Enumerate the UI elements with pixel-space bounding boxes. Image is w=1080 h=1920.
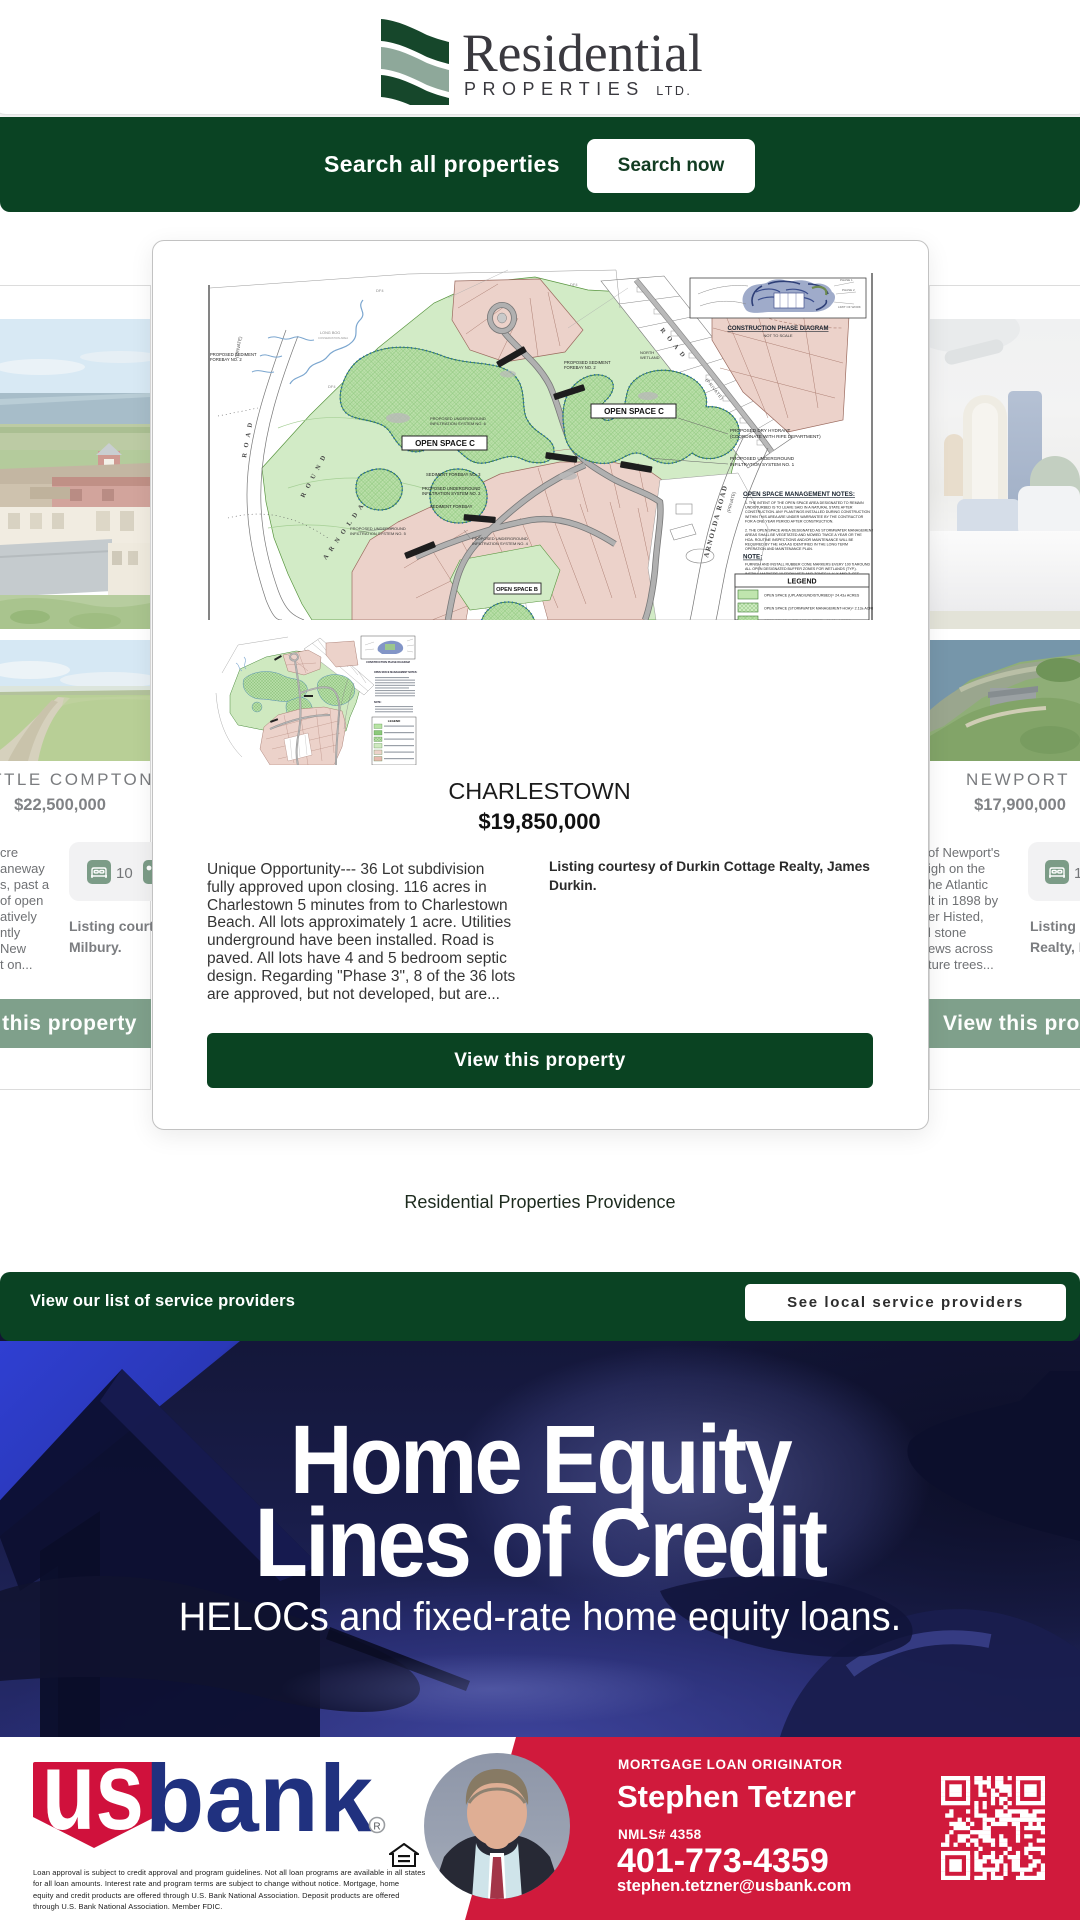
svg-text:INFILTRATION SYSTEM NO. 1: INFILTRATION SYSTEM NO. 1 bbox=[730, 462, 795, 467]
svg-text:PHASE 1: PHASE 1 bbox=[840, 278, 853, 282]
svg-text:OPEN SPACE C: OPEN SPACE C bbox=[604, 407, 664, 416]
svg-text:PROPOSED UNDERGROUND: PROPOSED UNDERGROUND bbox=[730, 456, 795, 461]
svg-text:CONSTRUCTION PHASE DIAGRAM: CONSTRUCTION PHASE DIAGRAM bbox=[727, 326, 828, 332]
svg-text:WETLAND: WETLAND bbox=[640, 355, 660, 360]
svg-text:bank: bank bbox=[145, 1762, 374, 1852]
svg-text:NOTE:: NOTE: bbox=[743, 554, 762, 561]
svg-text:INFILTRATION SYSTEM NO. 6: INFILTRATION SYSTEM NO. 6 bbox=[430, 421, 487, 426]
svg-text:LEGEND: LEGEND bbox=[787, 579, 816, 586]
svg-text:DF4: DF4 bbox=[376, 288, 384, 293]
svg-text:OPERATION AND MAINTENANCE PLAN: OPERATION AND MAINTENANCE PLAN. bbox=[745, 547, 813, 551]
svg-text:SEDIMENT FOREBAY: SEDIMENT FOREBAY bbox=[430, 504, 473, 509]
svg-text:FOREBAY NO. 2: FOREBAY NO. 2 bbox=[210, 357, 242, 362]
svg-text:OPEN SPACE (WETLAND BUFFER)= 2: OPEN SPACE (WETLAND BUFFER)= 20.90± ACRE… bbox=[764, 619, 851, 620]
svg-text:NOT TO SCALE: NOT TO SCALE bbox=[763, 333, 792, 338]
svg-text:SEDIMENT FOREBAY NO. 3: SEDIMENT FOREBAY NO. 3 bbox=[426, 472, 481, 477]
svg-text:CONSTRUCTION. ANY PLANTINGS IN: CONSTRUCTION. ANY PLANTINGS INSTALLED DU… bbox=[745, 510, 870, 514]
svg-text:PHASE 2: PHASE 2 bbox=[842, 288, 855, 292]
svg-text:WITHIN THIS AREA ARE UNDER WAR: WITHIN THIS AREA ARE UNDER WARRANTEE BY … bbox=[745, 515, 864, 519]
svg-text:HOA. ROUTINE INSPECTIONS AND/O: HOA. ROUTINE INSPECTIONS AND/OR MAINTENA… bbox=[745, 538, 854, 542]
svg-text:AREAS SHALL BE VEGETATED AND M: AREAS SHALL BE VEGETATED AND MOWED TWICE… bbox=[745, 533, 862, 537]
svg-text:CONSERVATION AREA: CONSERVATION AREA bbox=[318, 336, 348, 340]
svg-text:1. THE INTENT OF THE OPEN SPA: 1. THE INTENT OF THE OPEN SPACE AREA DES… bbox=[745, 501, 864, 505]
svg-text:DF4: DF4 bbox=[328, 384, 336, 389]
svg-text:OPEN SPACE (UPLAND/UNDISTURBED: OPEN SPACE (UPLAND/UNDISTURBED)= 24.43± … bbox=[764, 594, 860, 598]
svg-text:ALL OPEN DESIGNATED BUFFER: ALL OPEN DESIGNATED BUFFER ZONES FOR WET… bbox=[745, 567, 857, 571]
svg-text:R: R bbox=[373, 1822, 380, 1833]
svg-text:OPEN SPACE B: OPEN SPACE B bbox=[496, 587, 538, 593]
svg-text:(COORDINATE WITH RIFE DEPARTME: (COORDINATE WITH RIFE DEPARTMENT) bbox=[730, 434, 821, 439]
svg-text:NOTE:: NOTE: bbox=[374, 701, 382, 704]
svg-text:FURNISH AND INSTALL RUBBER CON: FURNISH AND INSTALL RUBBER CONE MARKERS … bbox=[745, 563, 870, 567]
svg-text:OPEN SPACE MANAGEMENT NOTES:: OPEN SPACE MANAGEMENT NOTES: bbox=[743, 491, 855, 498]
svg-text:REQUIRED BY THE HOA AS IDENTIF: REQUIRED BY THE HOA AS IDENTIFIED IN THE… bbox=[745, 542, 848, 546]
svg-text:OPEN SPACE C: OPEN SPACE C bbox=[415, 439, 475, 448]
svg-text:DF4: DF4 bbox=[570, 282, 578, 287]
svg-text:UNDISTURBED IS TO LEAVE SAID I: UNDISTURBED IS TO LEAVE SAID IN A NATURA… bbox=[745, 506, 853, 510]
svg-text:INFILTRATION SYSTEM NO. 4: INFILTRATION SYSTEM NO. 4 bbox=[472, 541, 529, 546]
svg-text:LIMIT OF WORK: LIMIT OF WORK bbox=[838, 305, 861, 309]
svg-text:OPEN SPACE MANAGEMENT NOTES:: OPEN SPACE MANAGEMENT NOTES: bbox=[374, 671, 417, 674]
svg-text:PROPOSED DRY HYDRANT: PROPOSED DRY HYDRANT bbox=[730, 428, 791, 433]
svg-text:2. THE OPEN SPACE AREA DESIGN: 2. THE OPEN SPACE AREA DESIGNATED AS STO… bbox=[745, 529, 873, 533]
svg-text:FOREBAY NO. 2: FOREBAY NO. 2 bbox=[564, 365, 596, 370]
svg-text:FOR A ONE YEAR PERIOD AFTER CO: FOR A ONE YEAR PERIOD AFTER CONSTRUCTION… bbox=[745, 519, 833, 523]
svg-text:INFILTRATION SYSTEM NO. 2: INFILTRATION SYSTEM NO. 2 bbox=[422, 491, 481, 496]
svg-text:LONG BOG: LONG BOG bbox=[320, 331, 340, 335]
svg-text:CONSTRUCTION PHASE DIAGRAM: CONSTRUCTION PHASE DIAGRAM bbox=[366, 660, 410, 664]
svg-text:LEGEND: LEGEND bbox=[388, 719, 401, 723]
svg-text:us: us bbox=[42, 1762, 144, 1854]
svg-text:OPEN SPACE (STORMWATER MANAGEM: OPEN SPACE (STORMWATER MANAGEMENT-HOA)= … bbox=[764, 607, 873, 611]
